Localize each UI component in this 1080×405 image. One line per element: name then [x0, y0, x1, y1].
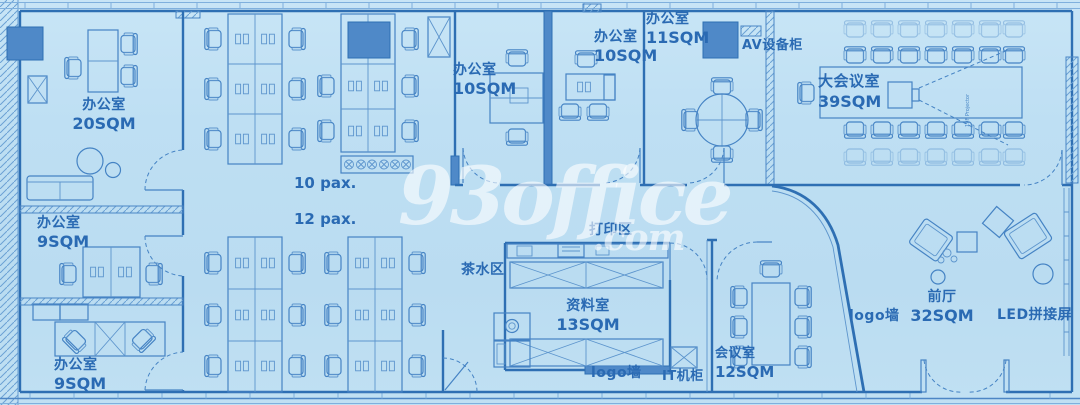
- office-9sqm-bottom: [33, 304, 165, 356]
- open-office-12pax: [205, 237, 425, 392]
- lobby: [908, 207, 1053, 284]
- projector-label: 19F Projector: [965, 93, 971, 127]
- label-it-cabinet: IT机柜: [662, 369, 704, 386]
- label-office-9sqm-bottom: 办公室 9SQM: [54, 356, 106, 395]
- label-logo-wall-lobby: logo墙: [849, 307, 900, 325]
- label-office-20sqm: 办公室 20SQM: [72, 96, 135, 135]
- label-office-10sqm-a: 办公室 10SQM: [453, 61, 516, 100]
- label-12pax: 12 pax.: [294, 210, 356, 230]
- label-pantry: 茶水区: [461, 261, 505, 279]
- pantry-counter: [494, 313, 530, 367]
- label-archive-room: 资料室 13SQM: [556, 297, 619, 336]
- label-conference-room: 大会议室 39SQM: [818, 72, 881, 112]
- watermark-suffix: .com: [592, 220, 685, 256]
- label-office-9sqm-middle: 办公室 9SQM: [37, 214, 89, 253]
- label-logo-wall-center: logo墙: [591, 364, 642, 382]
- it-cabinet-box: [671, 347, 697, 368]
- floor-plan-page: 19F Projector: [0, 0, 1080, 405]
- office-9sqm-middle: [60, 247, 162, 297]
- label-av-cabinet: AV设备柜: [742, 38, 803, 55]
- label-10pax: 10 pax.: [294, 174, 356, 194]
- label-office-11sqm: 办公室 11SQM: [646, 10, 709, 49]
- label-lobby: 前厅 32SQM: [910, 288, 973, 327]
- label-led-screen: LED拼接屏: [997, 306, 1072, 324]
- label-meeting-room: 会议室 12SQM: [715, 346, 774, 382]
